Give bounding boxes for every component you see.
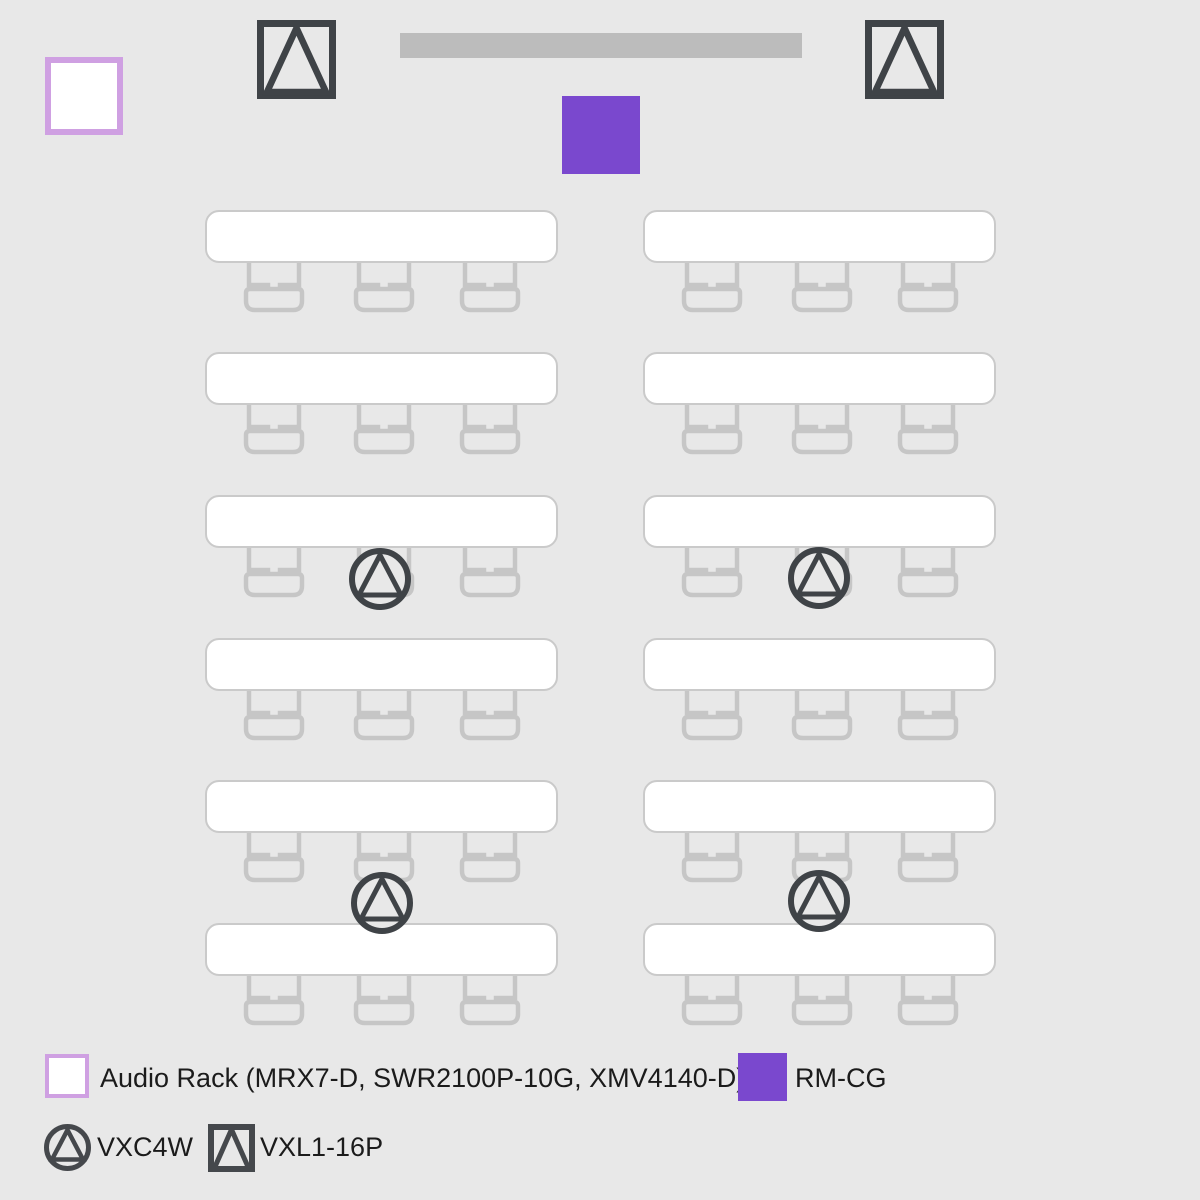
vxc4w-ceiling-speaker-icon	[345, 544, 415, 614]
chair-icon	[900, 405, 956, 452]
table	[643, 638, 996, 691]
chair-row	[205, 975, 558, 1029]
chair-icon	[246, 976, 302, 1023]
chair-icon	[462, 691, 518, 738]
chair-icon	[794, 405, 850, 452]
legend-audio-rack-swatch	[45, 1054, 89, 1098]
chair-row	[205, 262, 558, 316]
chair-icon	[900, 548, 956, 595]
chair-icon	[462, 976, 518, 1023]
room-plan: Audio Rack (MRX7-D, SWR2100P-10G, XMV414…	[0, 0, 1200, 1200]
chair-icon	[246, 405, 302, 452]
chair-icon	[246, 691, 302, 738]
table-with-chairs	[205, 210, 558, 316]
vxl1-16p-line-speaker-icon	[865, 20, 944, 99]
table	[643, 495, 996, 548]
legend-rm-cg-label: RM-CG	[795, 1062, 886, 1094]
chair-icon	[356, 691, 412, 738]
chair-icon	[246, 833, 302, 880]
chair-icon	[462, 263, 518, 310]
chair-icon	[356, 405, 412, 452]
chair-icon	[462, 548, 518, 595]
chair-icon	[684, 548, 740, 595]
table	[205, 352, 558, 405]
chair-row	[643, 404, 996, 458]
chair-icon	[356, 263, 412, 310]
chair-icon	[246, 263, 302, 310]
chair-icon	[684, 691, 740, 738]
legend-audio-rack-label: Audio Rack (MRX7-D, SWR2100P-10G, XMV414…	[100, 1062, 745, 1094]
chair-icon	[462, 405, 518, 452]
table	[643, 210, 996, 263]
table	[205, 210, 558, 263]
chair-icon	[794, 976, 850, 1023]
table-with-chairs	[643, 210, 996, 316]
vxc4w-ceiling-speaker-icon	[347, 868, 417, 938]
vxl1-16p-line-speaker-icon	[257, 20, 336, 99]
table-with-chairs	[643, 638, 996, 744]
table	[643, 780, 996, 833]
table	[205, 780, 558, 833]
table	[205, 638, 558, 691]
chair-row	[205, 404, 558, 458]
chair-row	[205, 690, 558, 744]
chair-icon	[900, 263, 956, 310]
table	[205, 495, 558, 548]
chair-icon	[900, 833, 956, 880]
legend-vxc4w-label: VXC4W	[97, 1131, 193, 1163]
chair-row	[643, 975, 996, 1029]
table-with-chairs	[205, 923, 558, 1029]
legend-vxc4w-icon	[43, 1122, 92, 1173]
legend-rm-cg-swatch	[738, 1053, 787, 1101]
vxc4w-ceiling-speaker-icon	[784, 543, 854, 613]
chair-icon	[684, 263, 740, 310]
table	[643, 352, 996, 405]
legend-vxl1-16p-label: VXL1-16P	[260, 1131, 383, 1163]
table-with-chairs	[643, 352, 996, 458]
vxc4w-ceiling-speaker-icon	[784, 866, 854, 936]
chair-icon	[900, 976, 956, 1023]
table-with-chairs	[205, 638, 558, 744]
chair-icon	[462, 833, 518, 880]
chair-icon	[684, 405, 740, 452]
chair-icon	[794, 691, 850, 738]
table-with-chairs	[205, 352, 558, 458]
chair-icon	[684, 976, 740, 1023]
furniture-layer	[0, 0, 1200, 1200]
chair-row	[643, 690, 996, 744]
chair-icon	[684, 833, 740, 880]
table-with-chairs	[643, 923, 996, 1029]
chair-icon	[246, 548, 302, 595]
chair-row	[643, 262, 996, 316]
chair-icon	[794, 263, 850, 310]
chair-icon	[900, 691, 956, 738]
legend-vxl1-16p-icon	[208, 1124, 255, 1172]
chair-icon	[356, 976, 412, 1023]
